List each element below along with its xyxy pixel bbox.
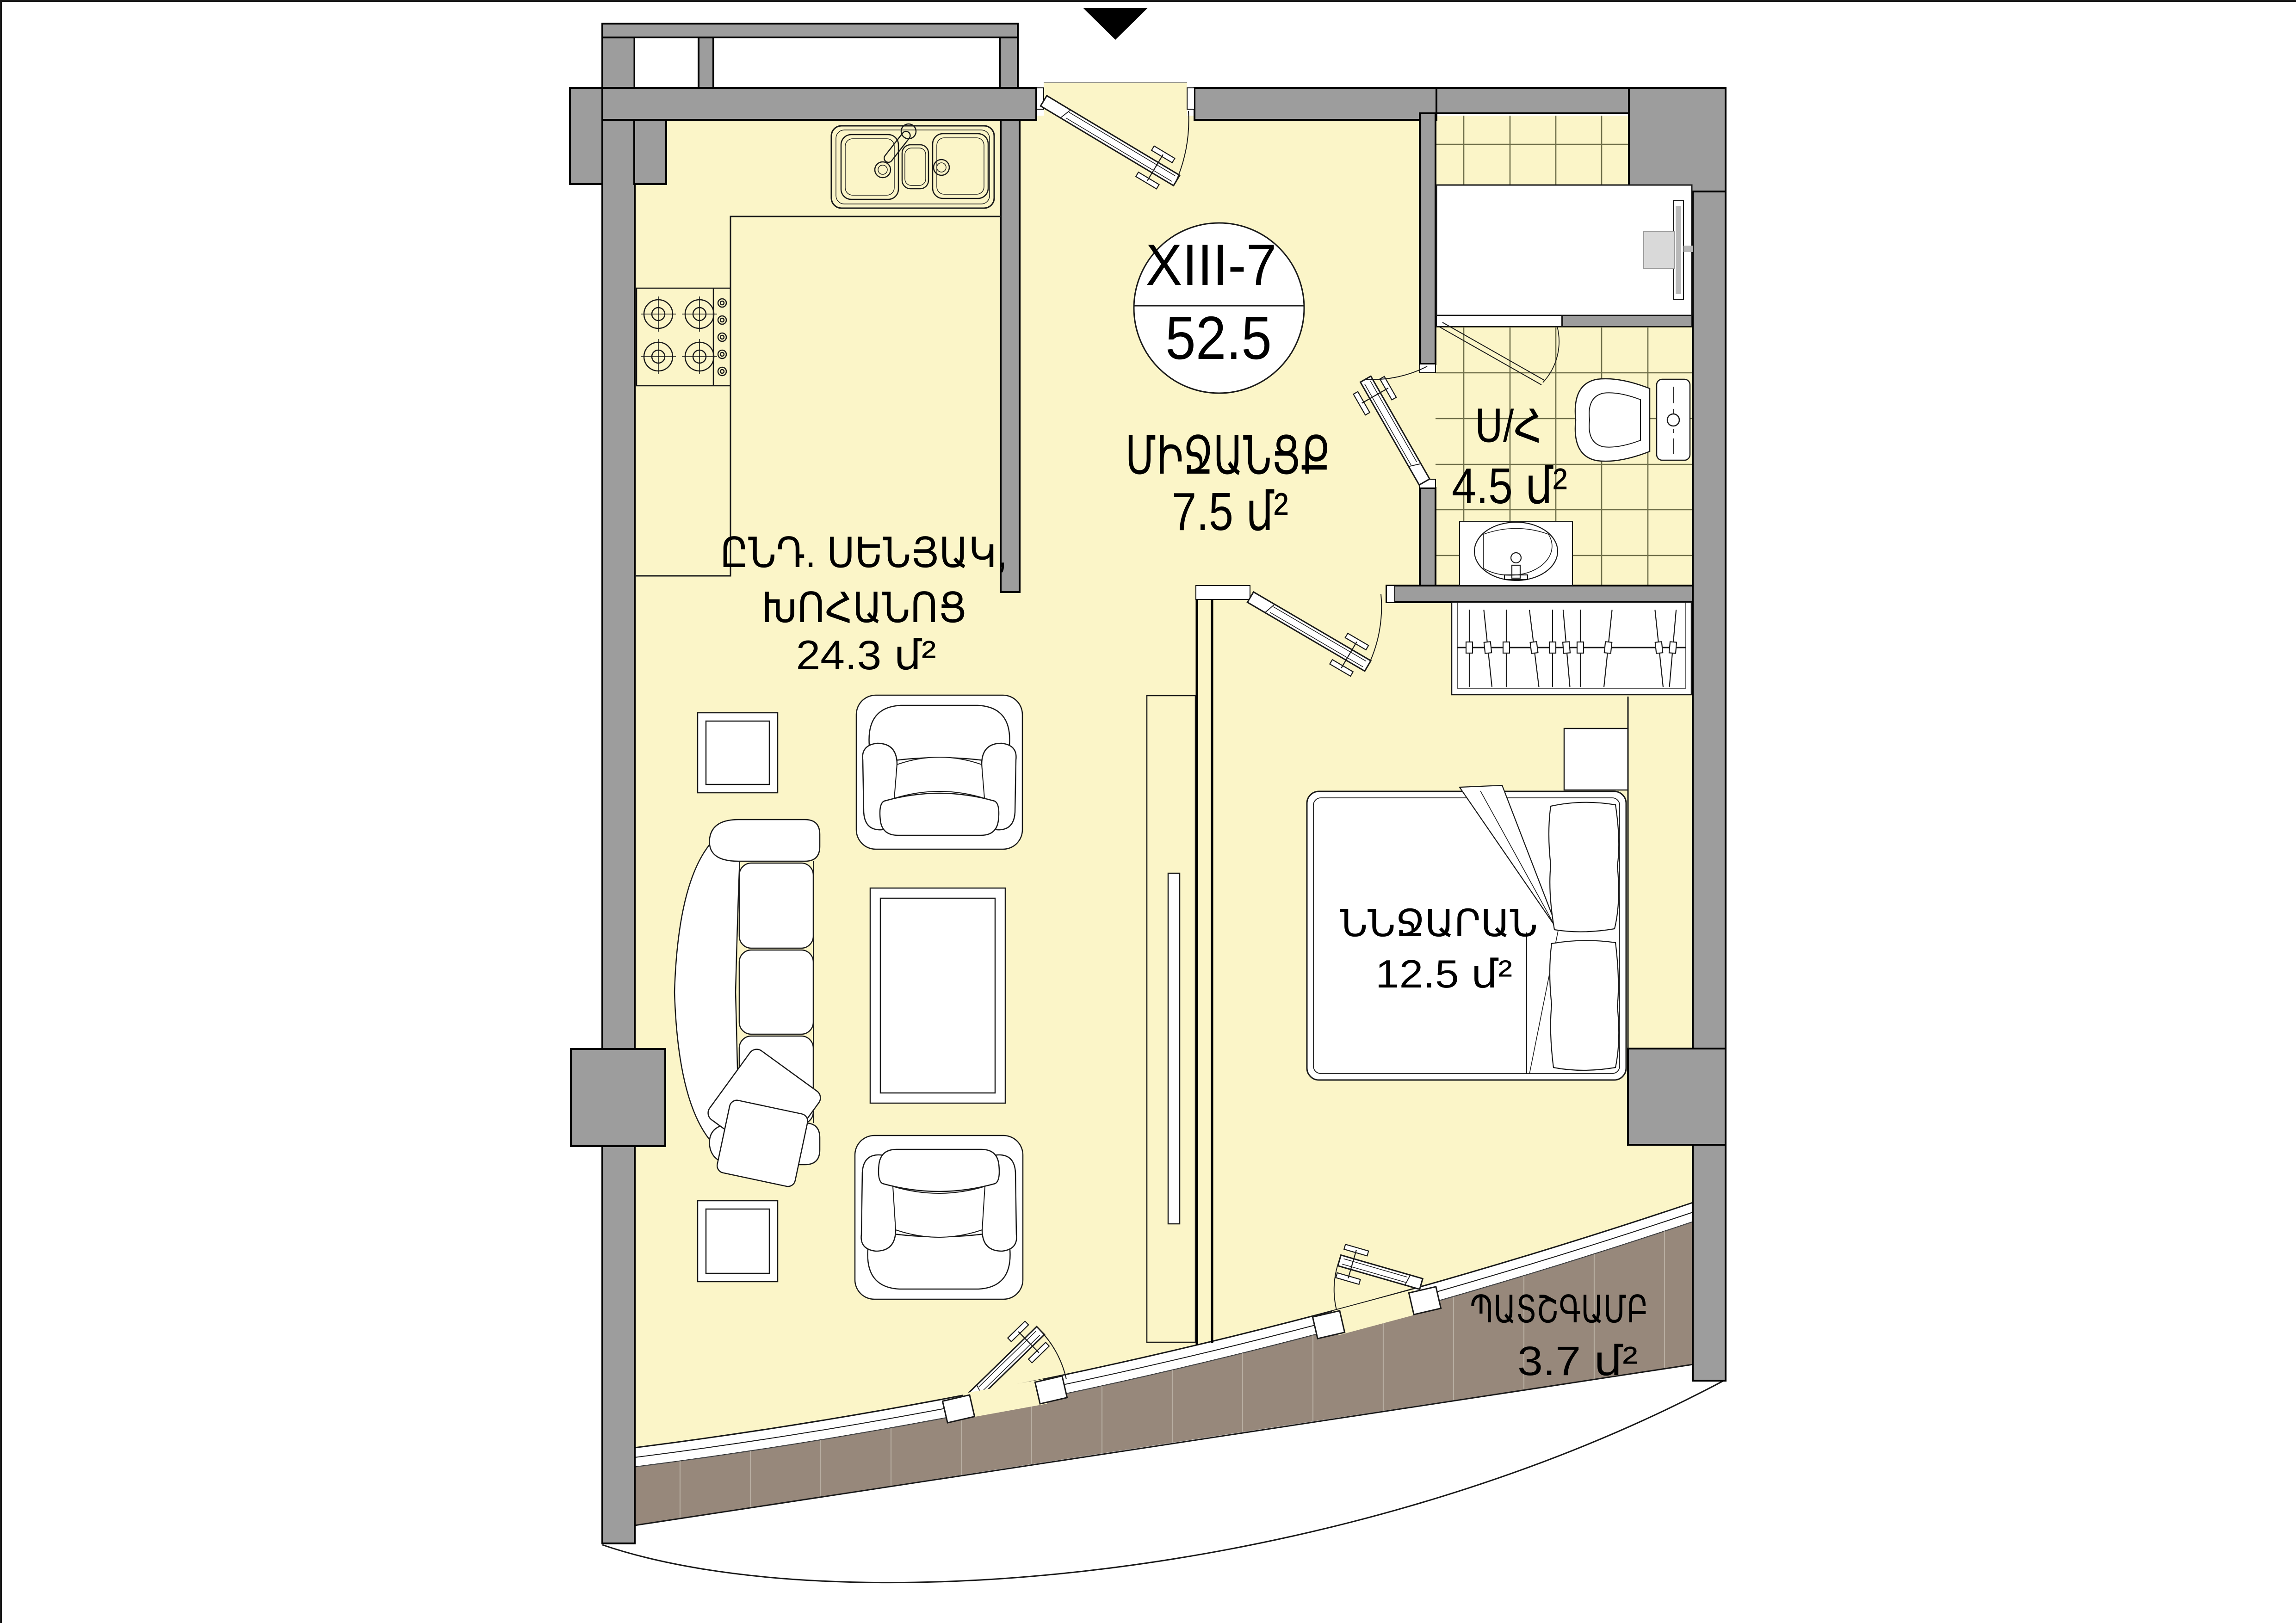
svg-text:3.7 մ²: 3.7 մ² (1517, 1338, 1638, 1384)
svg-text:ՊԱՏՇԳԱՄԲ: ՊԱՏՇԳԱՄԲ (1470, 1289, 1648, 1331)
svg-text:ՄԻՋԱՆՑՔ: ՄԻՋԱՆՑՔ (1126, 426, 1331, 485)
svg-text:7.5 մ²: 7.5 մ² (1172, 481, 1288, 542)
svg-text:ԽՈՀԱՆՈՑ: ԽՈՀԱՆՈՑ (761, 585, 967, 631)
svg-text:Ս/Հ: Ս/Հ (1475, 401, 1542, 451)
svg-text:ԸՆԴ. ՍԵՆՅԱԿ,: ԸՆԴ. ՍԵՆՅԱԿ, (720, 530, 1008, 576)
svg-text:24.3 մ²: 24.3 մ² (796, 632, 936, 678)
svg-text:4.5 մ²: 4.5 մ² (1452, 458, 1567, 514)
svg-text:XIII-7: XIII-7 (1146, 232, 1277, 297)
svg-text:12.5 մ²: 12.5 մ² (1375, 952, 1512, 996)
svg-text:ՆՆՋԱՐԱՆ: ՆՆՋԱՐԱՆ (1340, 903, 1538, 944)
svg-text:52.5: 52.5 (1165, 304, 1272, 372)
